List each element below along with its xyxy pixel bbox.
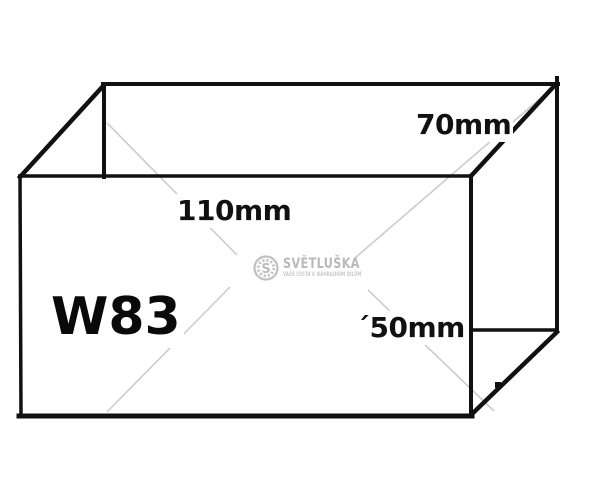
dimension-label-height: ´50mm — [354, 311, 467, 345]
dimension-label-width: 110mm — [175, 194, 293, 228]
part-code-label: W83 — [48, 286, 184, 348]
svetluska-logo-icon: S — [255, 257, 278, 280]
watermark-tagline-text: VAŠE CESTA K NÁHRADNÍM DÍLŮM — [283, 272, 362, 278]
watermark-logo-letter: S — [261, 262, 270, 277]
diagram-canvas: S 70mm 110mm ´50mm W83 SVĚTLUŠKA VAŠE CE… — [0, 0, 600, 504]
dimension-label-depth: 70mm — [414, 108, 513, 142]
box-wireframe-diagram: S — [0, 0, 600, 504]
